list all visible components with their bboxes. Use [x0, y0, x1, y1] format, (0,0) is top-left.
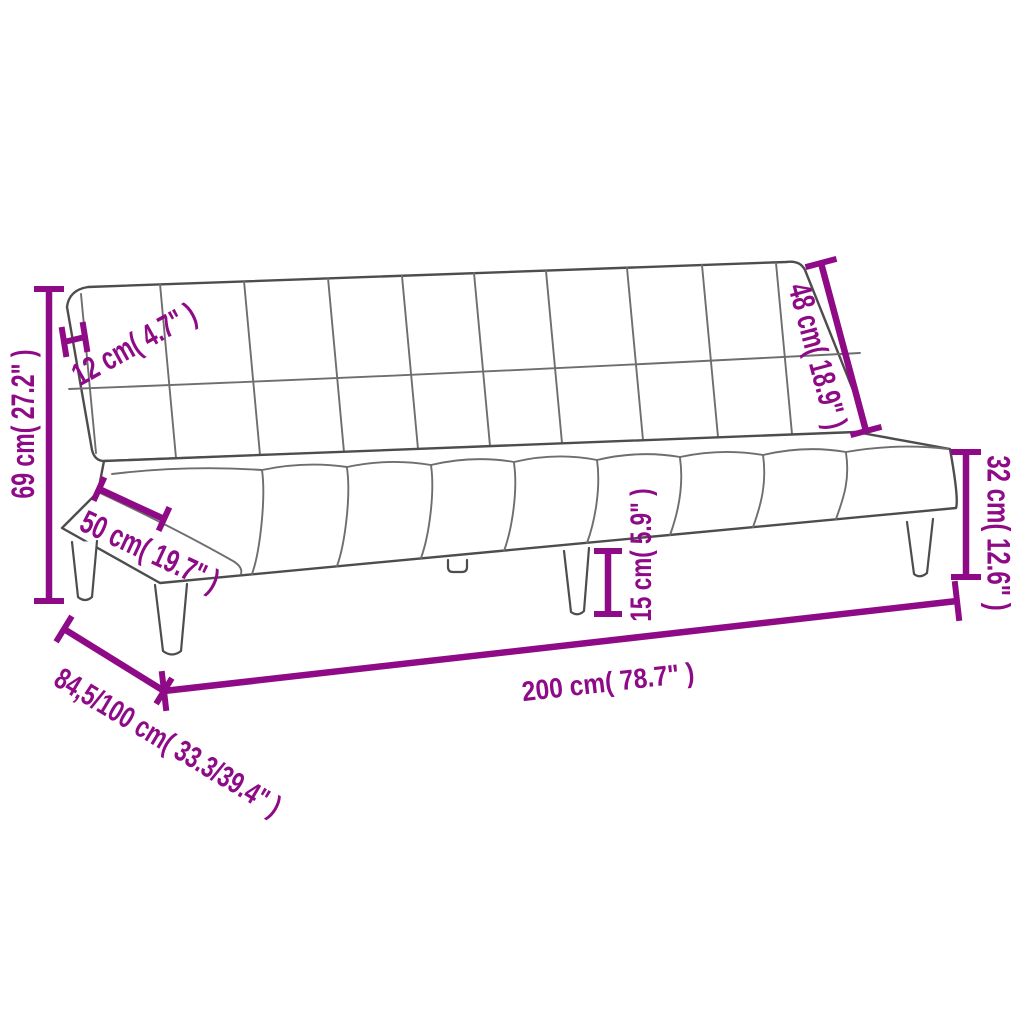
- dimension-diagram-canvas: 69 cm( 27.2" ) 12 cm( 4.7" ) 48 cm( 18.9…: [0, 0, 1024, 1024]
- dim-label-seat-height: 32 cm( 12.6" ): [981, 455, 1017, 610]
- dim-label-leg-height: 15 cm( 5.9" ): [624, 488, 658, 621]
- dim-seat-height: 32 cm( 12.6" ): [951, 452, 1017, 611]
- sofa-leg-center: [564, 548, 589, 614]
- sofa-backrest-outline: [67, 262, 866, 461]
- dim-label-total-width: 200 cm( 78.7" ): [520, 656, 696, 707]
- dim-total-width: 200 cm( 78.7" ): [162, 581, 960, 711]
- dim-total-height: 69 cm( 27.2" ): [5, 289, 64, 601]
- sofa-support-foot: [448, 560, 467, 572]
- sofa-leg-right: [907, 519, 933, 576]
- sofa-leg-rear-left: [72, 541, 97, 600]
- dim-label-total-height: 69 cm( 27.2" ): [5, 349, 41, 498]
- sofa-leg-front-left: [155, 584, 187, 655]
- sofa-dimension-diagram: 69 cm( 27.2" ) 12 cm( 4.7" ) 48 cm( 18.9…: [0, 0, 1024, 1024]
